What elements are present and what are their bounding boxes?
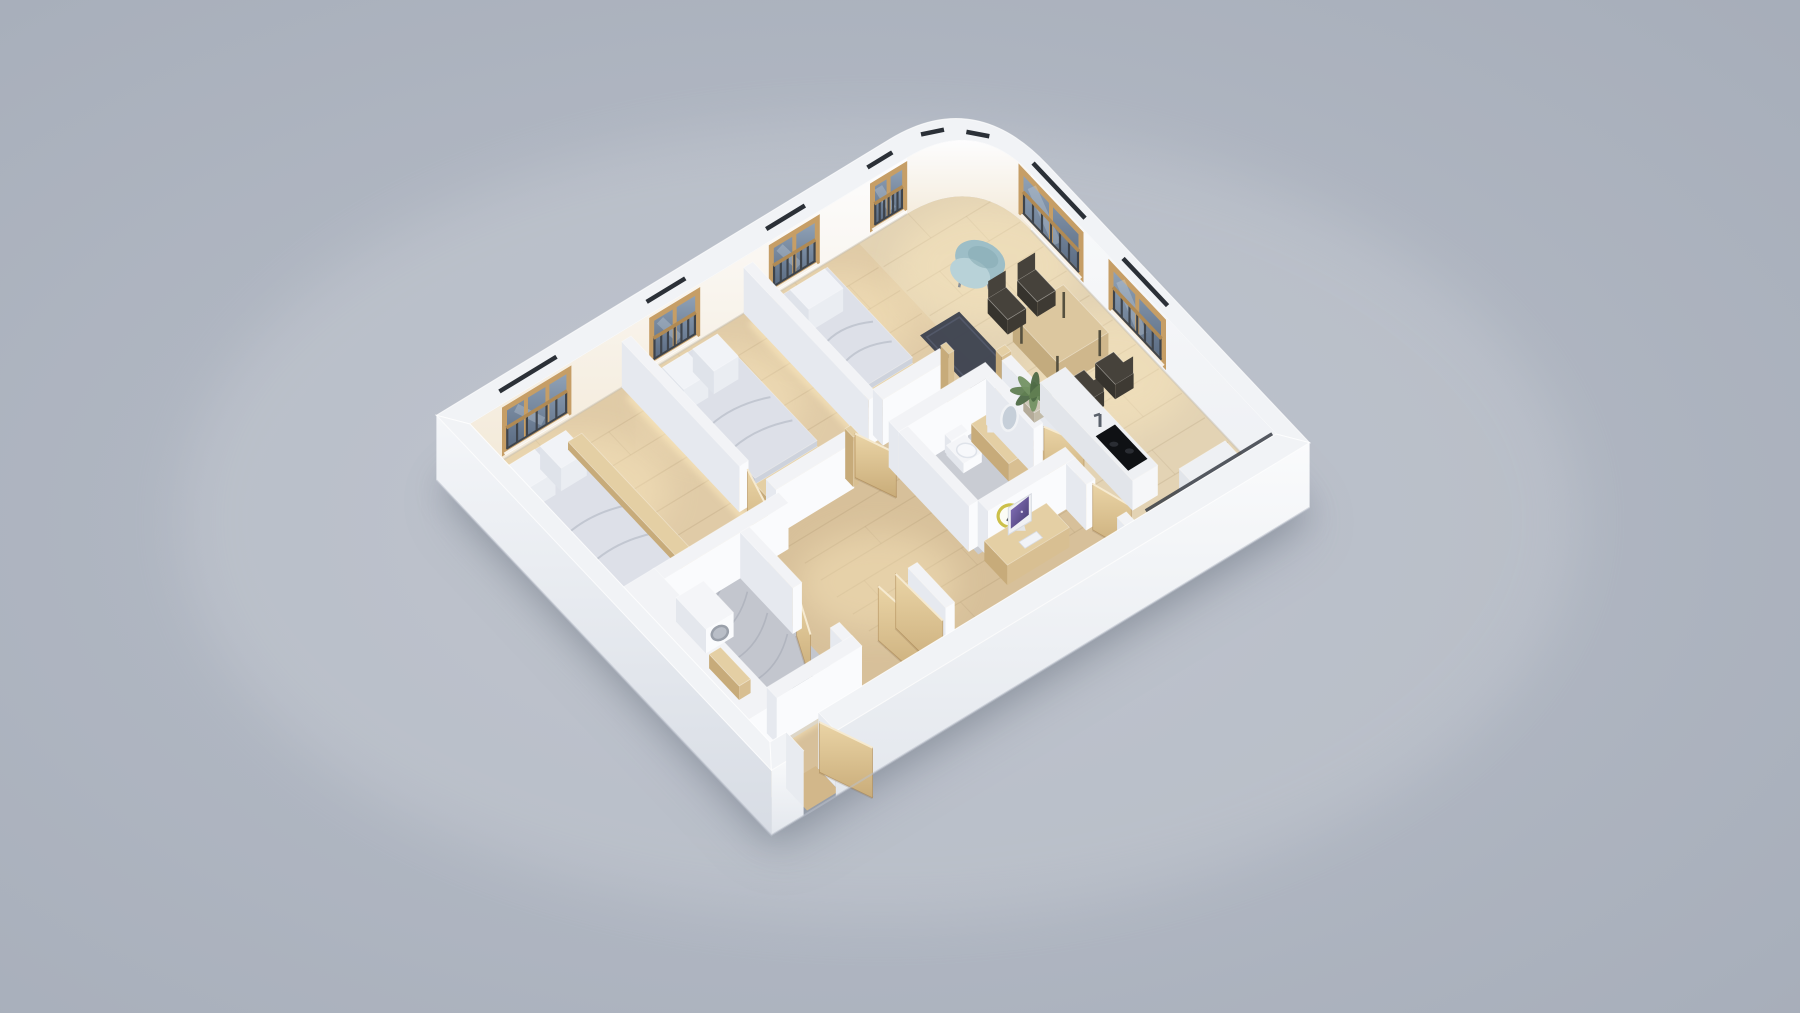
door-frame-left-face: [845, 429, 853, 487]
screen-star: [1021, 511, 1023, 513]
wall-right-face: [793, 582, 802, 634]
floor-plan-render: [0, 0, 1800, 1013]
cooktop-burner: [1109, 442, 1118, 447]
render-stage: [0, 0, 1800, 1013]
cooktop-burner: [1125, 448, 1134, 453]
wall-right-face: [969, 500, 978, 552]
